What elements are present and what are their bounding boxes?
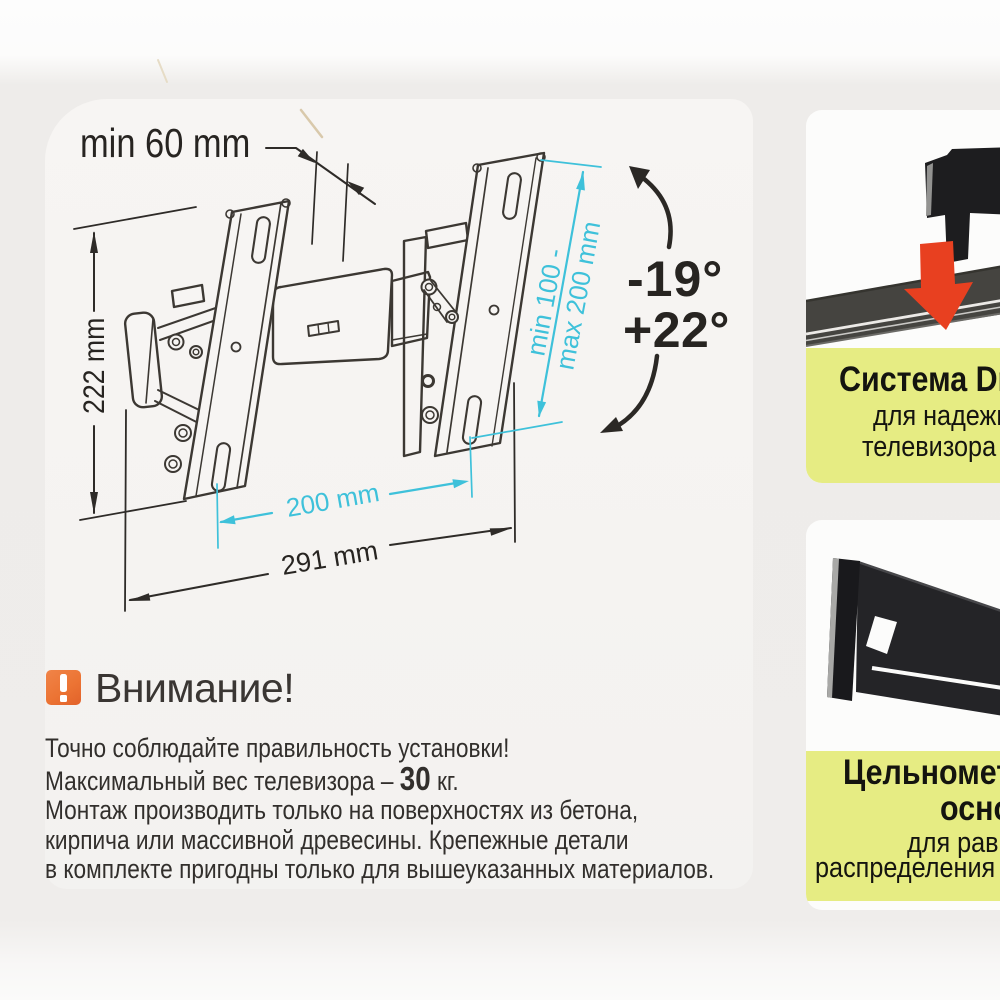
svg-text:291 mm: 291 mm: [279, 535, 380, 581]
svg-text:-19°: -19°: [627, 251, 723, 307]
svg-text:200 mm: 200 mm: [284, 477, 382, 523]
svg-text:+22°: +22°: [623, 302, 730, 358]
svg-text:222 mm: 222 mm: [78, 318, 112, 414]
svg-text:min 60 mm: min 60 mm: [80, 121, 250, 166]
